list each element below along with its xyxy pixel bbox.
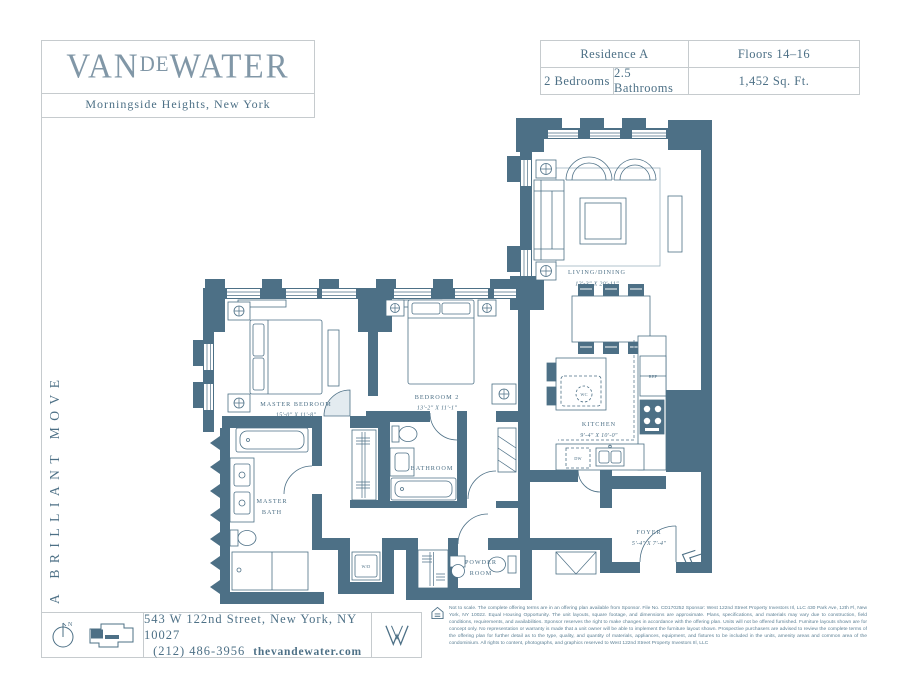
- label-foyer: FOYER: [636, 529, 661, 536]
- label-master-bedroom: MASTER BEDROOM: [260, 401, 332, 408]
- footer-icons: N: [42, 613, 144, 657]
- website: thevandewater.com: [253, 646, 362, 658]
- label-powder-1: POWDER: [465, 559, 497, 566]
- vandewater-monogram-icon: [385, 623, 409, 647]
- label-bathroom: BATHROOM: [411, 465, 454, 472]
- label-master-bath-1: MASTER: [256, 498, 287, 505]
- label-wc: WC: [580, 392, 587, 397]
- bathroom-fixtures: [390, 413, 496, 500]
- monogram-box: [372, 613, 421, 657]
- dims-foyer: 5'-4" X 7'-4": [632, 540, 666, 547]
- disclaimer-text: Not to scale. The complete offering term…: [449, 605, 867, 647]
- equal-housing-icon: [431, 606, 444, 620]
- floor-plan: MASTER BEDROOM 15'-0" X 11'-8" BEDROOM 2…: [0, 0, 900, 695]
- street-address: 543 W 122nd Street, New York, NY 10027: [144, 611, 371, 643]
- label-wd: W/D: [362, 564, 371, 569]
- bedroom2-furniture: [386, 300, 516, 472]
- closet-shelving: [352, 430, 376, 500]
- keyplan-icon: [88, 620, 136, 650]
- label-powder-2: ROOM: [470, 570, 493, 577]
- label-living-dining: LIVING/DINING: [568, 269, 626, 276]
- compass-icon: N: [50, 619, 78, 651]
- dims-master-bedroom: 15'-0" X 11'-8": [276, 413, 317, 419]
- furniture: [228, 157, 703, 590]
- kitchen-fixtures: [547, 336, 666, 492]
- disclaimer-block: Not to scale. The complete offering term…: [431, 605, 867, 647]
- phone-number: (212) 486-3956: [153, 644, 245, 658]
- footer-address-block: 543 W 122nd Street, New York, NY 10027 (…: [144, 613, 372, 657]
- label-bedroom2: BEDROOM 2: [415, 394, 460, 401]
- contact-line: (212) 486-3956thevandewater.com: [153, 643, 362, 660]
- label-dw: DW: [574, 456, 582, 461]
- label-ref: REF: [649, 374, 658, 379]
- compass-north-label: N: [68, 622, 73, 628]
- dims-kitchen: 9'-4" X 10'-0": [580, 432, 618, 439]
- dims-bedroom2: 13'-2" X 11'-1": [417, 406, 458, 412]
- dims-living-dining: 12'-3" X 20'-11": [575, 282, 619, 288]
- label-master-bath-2: BATH: [262, 509, 282, 516]
- label-kitchen: KITCHEN: [582, 421, 616, 428]
- living-furniture: [534, 157, 682, 342]
- footer: N 543 W 122nd Street, New York, NY 10027…: [41, 612, 422, 658]
